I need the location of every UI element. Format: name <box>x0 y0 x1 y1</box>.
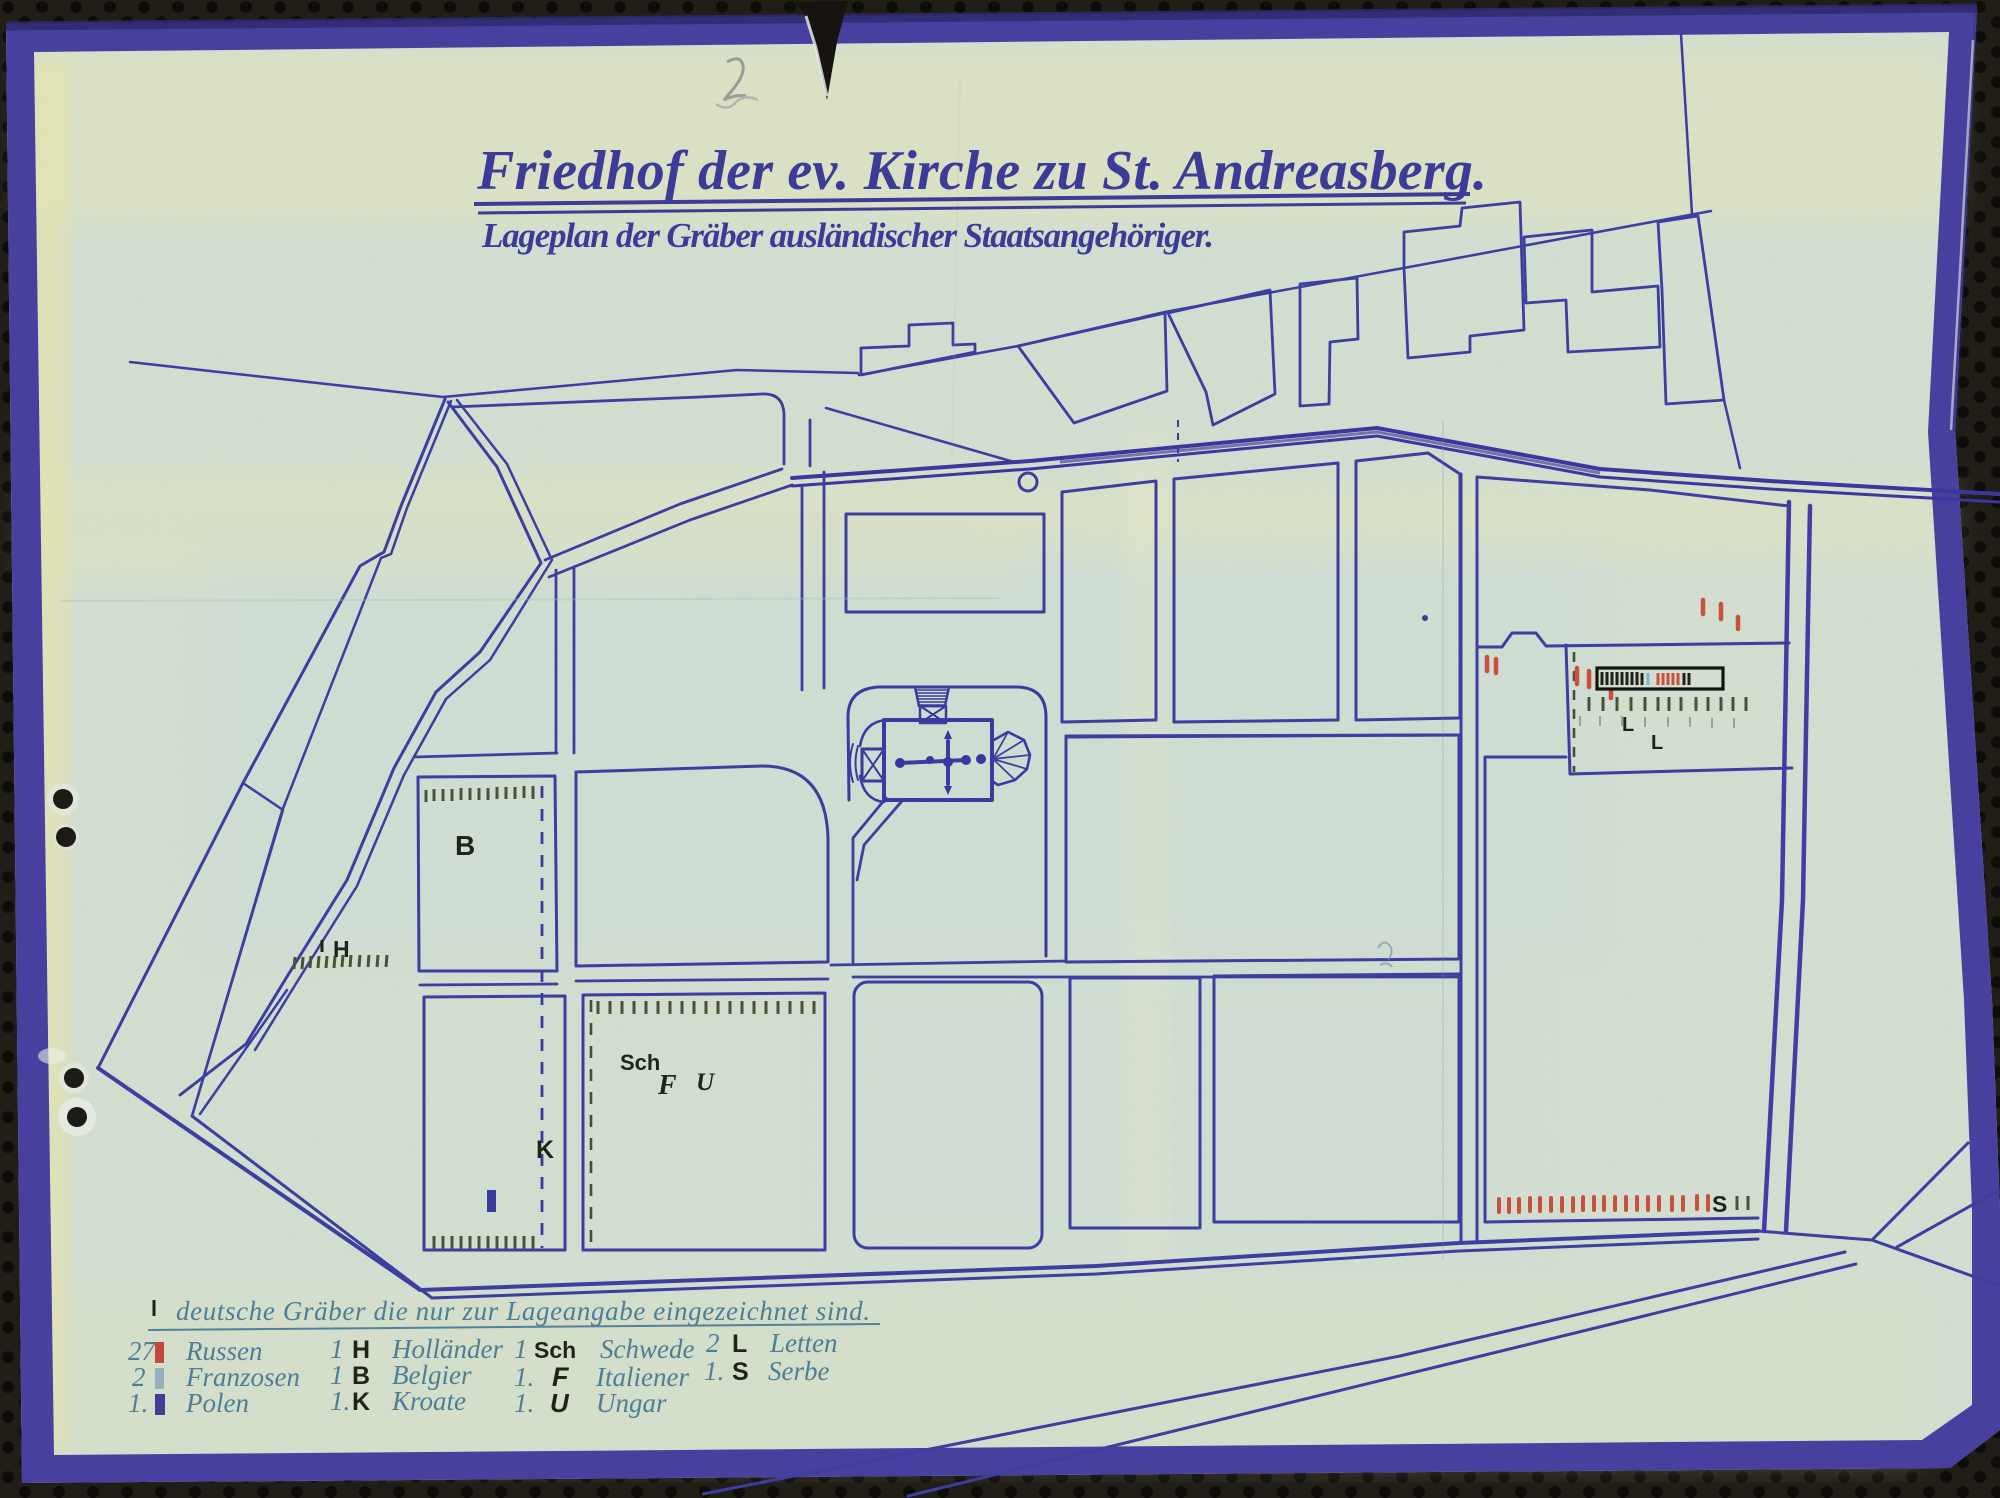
svg-text:1.: 1. <box>704 1356 724 1386</box>
svg-text:S: S <box>732 1358 749 1386</box>
svg-text:Schwede: Schwede <box>600 1334 694 1364</box>
svg-text:1: 1 <box>514 1334 528 1364</box>
svg-text:deutsche Gräber die nur zur La: deutsche Gräber die nur zur Lageangabe e… <box>176 1296 870 1326</box>
svg-text:K: K <box>352 1388 370 1416</box>
svg-text:S: S <box>1712 1191 1727 1217</box>
svg-text:Kroate: Kroate <box>391 1386 466 1416</box>
svg-text:1.: 1. <box>514 1388 534 1418</box>
svg-text:1.: 1. <box>128 1388 148 1418</box>
svg-text:Sch: Sch <box>620 1050 660 1075</box>
svg-text:Letten: Letten <box>769 1328 838 1358</box>
svg-text:L: L <box>1651 732 1663 754</box>
svg-text:Ungar: Ungar <box>596 1388 667 1418</box>
svg-text:K: K <box>536 1136 554 1164</box>
svg-text:H: H <box>333 936 350 962</box>
svg-text:F: F <box>657 1070 677 1101</box>
svg-text:B: B <box>455 830 475 861</box>
svg-text:Friedhof der ev. Kirche zu St.: Friedhof der ev. Kirche zu St. Andreasbe… <box>476 140 1487 202</box>
svg-text:1.: 1. <box>330 1386 350 1416</box>
svg-text:B: B <box>352 1362 370 1390</box>
svg-text:Lageplan der Gräber ausländisc: Lageplan der Gräber ausländischer Staats… <box>481 216 1214 255</box>
svg-text:H: H <box>352 1336 370 1364</box>
svg-text:Serbe: Serbe <box>768 1356 829 1386</box>
svg-text:Polen: Polen <box>185 1388 249 1418</box>
svg-text:2: 2 <box>706 1328 720 1358</box>
svg-text:L: L <box>1622 714 1634 736</box>
svg-text:U: U <box>696 1069 716 1096</box>
svg-text:U: U <box>550 1388 570 1418</box>
svg-text:L: L <box>732 1330 747 1358</box>
svg-text:Sch: Sch <box>534 1337 576 1363</box>
